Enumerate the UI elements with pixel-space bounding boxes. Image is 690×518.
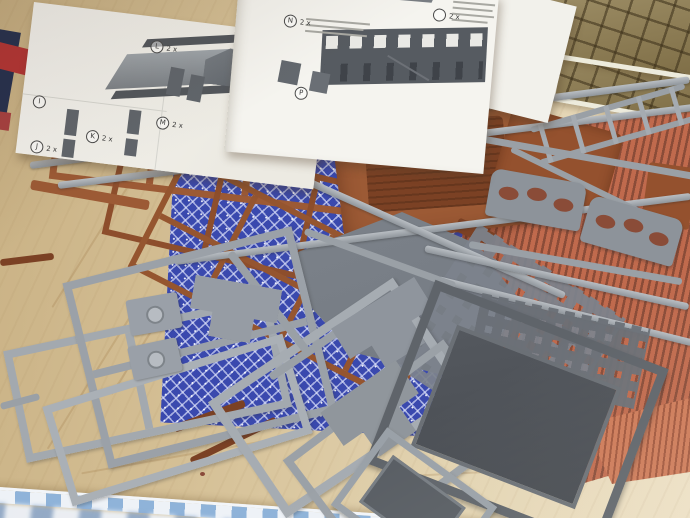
step-marker-j: J 2 x <box>30 140 58 156</box>
step-circle <box>432 8 446 22</box>
boss-circle <box>146 349 167 370</box>
instruction-sheet-middle: N 2 x P 2 x <box>224 0 499 174</box>
instruction-text-line <box>453 1 495 6</box>
part-diagram <box>386 0 438 3</box>
step-circle: M <box>155 116 169 130</box>
step-qty: 2 x <box>300 18 311 27</box>
step-qty: 2 x <box>166 44 178 53</box>
boss-circle <box>145 304 166 325</box>
step-marker-i: I <box>32 95 49 110</box>
wall-piece-diagram <box>309 71 330 94</box>
canopy-bracket-part <box>579 195 685 268</box>
photo-model-kit-on-table: I J 2 x K 2 x M 2 x L 2 x <box>0 0 690 518</box>
oval-hole <box>552 197 574 213</box>
step-circle: N <box>283 14 297 28</box>
station-wall-diagram <box>320 27 488 85</box>
oval-hole <box>526 186 548 202</box>
wall-piece-diagram <box>277 60 301 85</box>
step-circle: K <box>85 129 99 143</box>
wall-piece-diagram <box>124 138 138 156</box>
step-circle: J <box>30 140 44 154</box>
wall-piece-diagram <box>64 109 79 136</box>
window-row-drawing <box>326 33 485 49</box>
step-qty: 2 x <box>46 144 58 153</box>
wall-piece-diagram <box>61 139 75 158</box>
step-circle: L <box>150 40 164 54</box>
step-qty: 2 x <box>101 134 113 143</box>
oval-hole <box>622 217 645 235</box>
wall-piece-diagram <box>127 109 142 134</box>
step-marker-k: K 2 x <box>85 129 113 145</box>
step-qty: 2 x <box>172 120 184 129</box>
step-qty: 2 x <box>449 12 460 21</box>
step-marker-extra: 2 x <box>432 8 460 23</box>
step-circle: I <box>32 95 46 109</box>
step-circle: P <box>294 86 308 100</box>
oval-hole <box>498 185 520 201</box>
oval-hole <box>647 230 670 248</box>
step-marker-p: P <box>294 86 311 100</box>
step-marker-n: N 2 x <box>283 14 311 29</box>
oval-hole <box>594 213 617 231</box>
debris-speck <box>200 472 205 476</box>
